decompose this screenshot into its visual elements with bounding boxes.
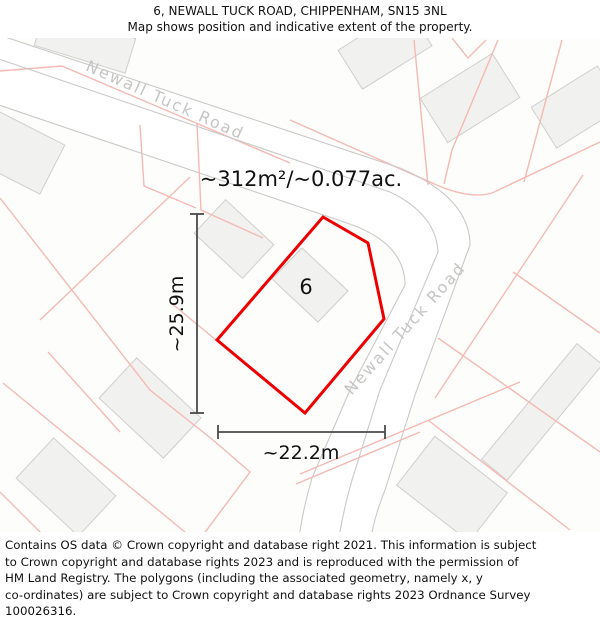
copyright-footer: Contains OS data © Crown copyright and d… [5,537,597,620]
footer-line: Contains OS data © Crown copyright and d… [5,537,597,554]
area-label: ~312m²/~0.077ac. [200,167,402,191]
footer-line: HM Land Registry. The polygons (includin… [5,570,597,587]
height-dimension-label: ~25.9m [166,276,188,353]
building [420,53,520,142]
parcel-line [452,38,486,58]
building [531,66,600,148]
page-subtitle: Map shows position and indicative extent… [0,20,600,36]
height-dimension: ~25.9m [166,214,204,413]
footer-line: to Crown copyright and database rights 2… [5,554,597,571]
building [482,344,600,481]
building [99,358,201,458]
parcel-line [513,272,600,333]
page-title: 6, NEWALL TUCK ROAD, CHIPPENHAM, SN15 3N… [0,4,600,20]
building [194,200,274,279]
header: 6, NEWALL TUCK ROAD, CHIPPENHAM, SN15 3N… [0,4,600,35]
width-dimension-label: ~22.2m [263,442,340,464]
plot-number-label: 6 [299,275,312,299]
property-map: Newall Tuck Road Newall Tuck Road ~312m²… [0,38,600,532]
footer-line: 100026316. [5,603,597,620]
footer-line: co-ordinates) are subject to Crown copyr… [5,587,597,604]
parcel-line [414,40,428,185]
building [16,438,116,532]
map-canvas: Newall Tuck Road Newall Tuck Road ~312m²… [0,38,600,532]
